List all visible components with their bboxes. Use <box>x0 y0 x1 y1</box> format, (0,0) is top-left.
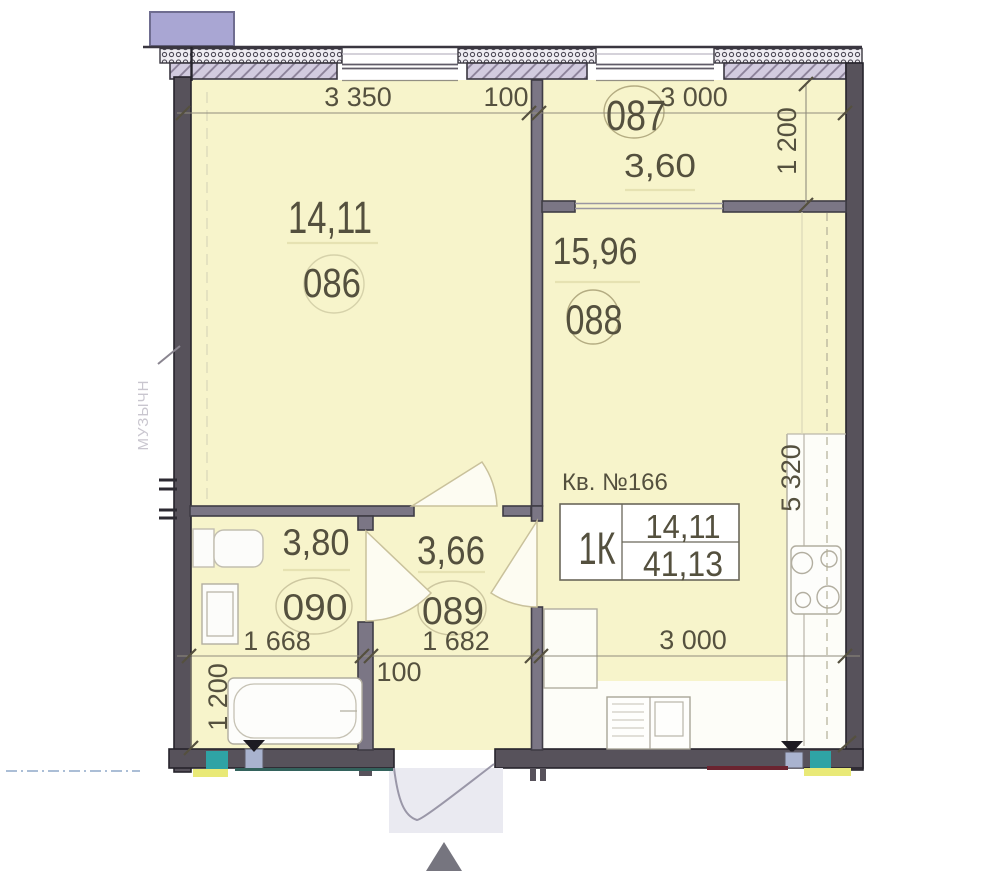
svg-text:3 000: 3 000 <box>660 82 728 112</box>
svg-text:1 200: 1 200 <box>203 663 233 731</box>
svg-text:14,11: 14,11 <box>646 508 721 545</box>
svg-text:15,96: 15,96 <box>553 231 638 273</box>
svg-text:1 200: 1 200 <box>772 107 802 175</box>
svg-text:3,60: 3,60 <box>624 147 696 184</box>
svg-text:1 668: 1 668 <box>243 626 311 656</box>
svg-text:3 350: 3 350 <box>324 82 392 112</box>
svg-text:1К: 1К <box>579 523 616 574</box>
svg-text:3,66: 3,66 <box>417 529 485 573</box>
svg-text:087: 087 <box>606 92 666 140</box>
svg-text:088: 088 <box>566 296 623 343</box>
svg-text:100: 100 <box>376 657 421 687</box>
svg-text:41,13: 41,13 <box>643 545 723 584</box>
svg-text:089: 089 <box>422 590 484 633</box>
svg-text:5 320: 5 320 <box>776 444 806 512</box>
svg-text:3 000: 3 000 <box>659 625 727 655</box>
svg-text:086: 086 <box>303 260 361 306</box>
svg-text:3,80: 3,80 <box>283 522 350 563</box>
svg-text:14,11: 14,11 <box>288 192 372 243</box>
svg-text:100: 100 <box>483 82 528 112</box>
svg-text:090: 090 <box>283 587 348 628</box>
svg-text:МУЗЫЧН: МУЗЫЧН <box>135 380 152 451</box>
svg-text:Кв. №166: Кв. №166 <box>562 469 668 496</box>
